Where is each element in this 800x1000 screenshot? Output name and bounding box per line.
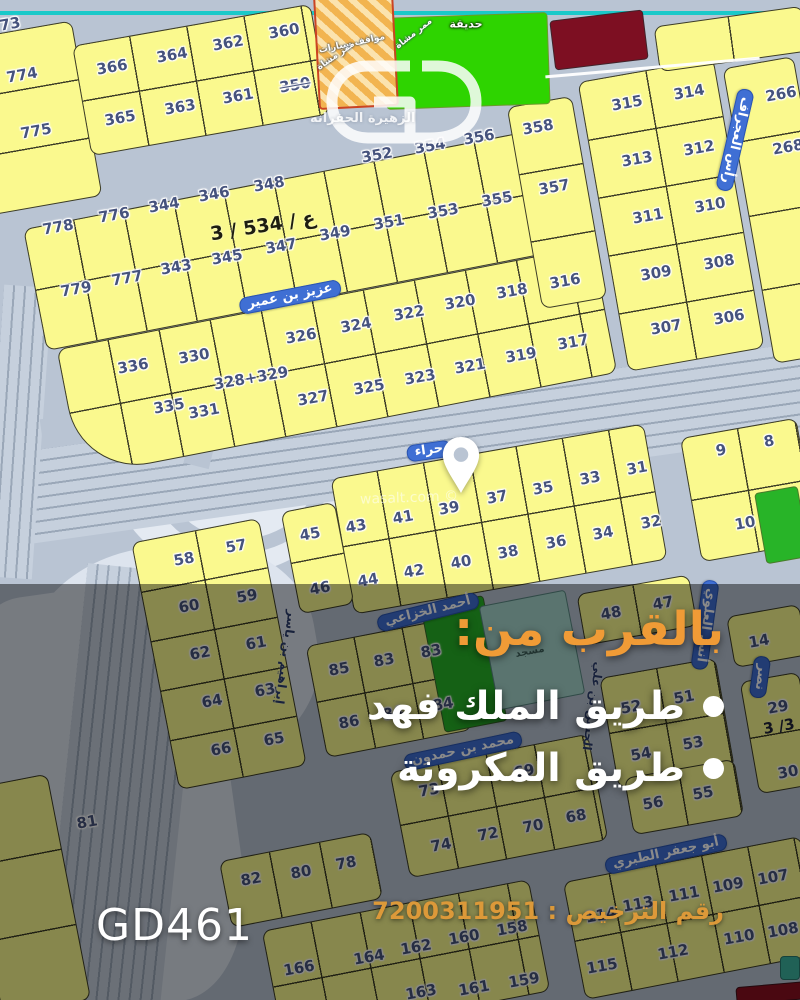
plot-number: 32	[639, 511, 663, 532]
plot-number: 58	[172, 548, 196, 569]
plot-number: 37	[485, 486, 509, 507]
plot-number: 38	[496, 541, 520, 562]
plot-number: 40	[449, 551, 473, 572]
park-label: حديقة	[450, 19, 483, 32]
plot-number: 41	[391, 506, 415, 527]
map-canvas[interactable]: عزيز بن عميرحراءرأس العجرافأنس العلويأحم…	[0, 0, 800, 1000]
plot-number: 43	[344, 515, 368, 536]
plot-number: 45	[298, 523, 322, 544]
location-pin-icon[interactable]	[441, 436, 481, 494]
plot-number: 34	[591, 522, 615, 543]
land-use-area	[754, 486, 800, 565]
dark-overlay	[0, 584, 800, 1000]
plot-number: 35	[531, 477, 555, 498]
gd-logo-watermark	[322, 52, 492, 152]
plot-number: 31	[625, 457, 649, 478]
district-watermark: الزهيرة الحفرانه	[310, 111, 415, 126]
land-use-area	[549, 9, 648, 70]
plot-number: 36	[544, 531, 568, 552]
plot-number: 42	[402, 560, 426, 581]
plot-number: 33	[578, 467, 602, 488]
plot-number: 57	[224, 535, 248, 556]
boundary-teal-line	[0, 11, 800, 15]
plot-number: 73	[0, 13, 22, 34]
plot-number: 10	[733, 512, 757, 533]
